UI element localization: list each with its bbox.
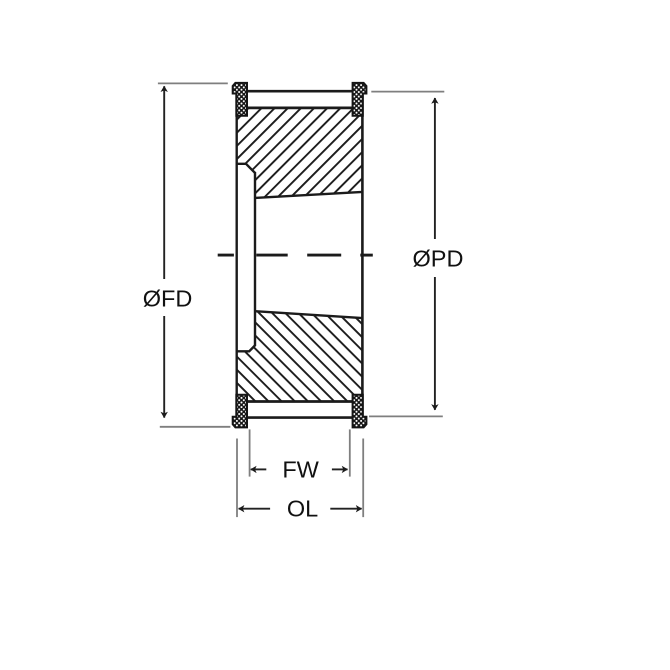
svg-text:OL: OL (287, 496, 318, 522)
svg-text:ØFD: ØFD (143, 285, 193, 311)
svg-text:FW: FW (282, 457, 319, 483)
svg-text:ØPD: ØPD (413, 245, 464, 271)
